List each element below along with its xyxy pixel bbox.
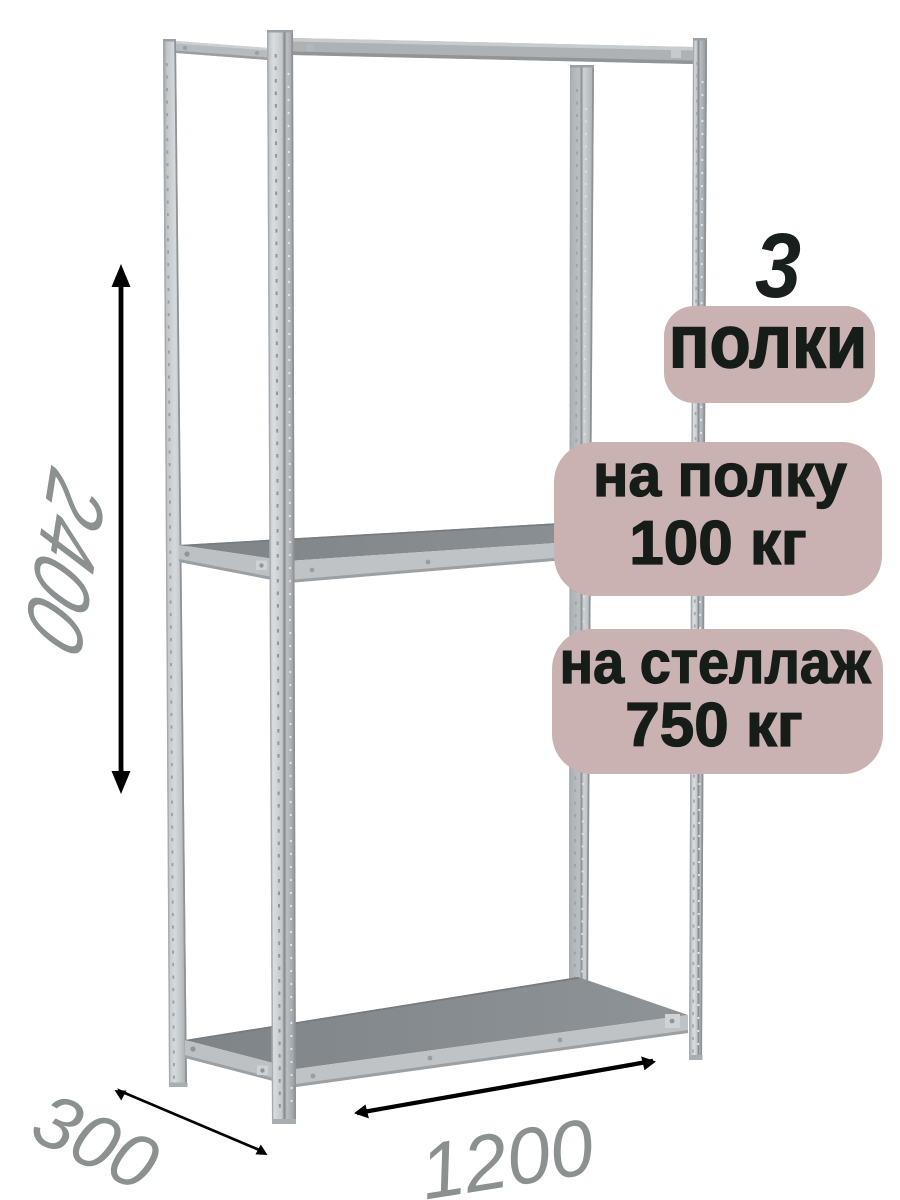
svg-text:750 кг: 750 кг [625,691,803,760]
svg-text:на стеллаж: на стеллаж [559,630,871,696]
svg-text:полки: полки [669,300,867,384]
svg-text:300: 300 [20,1076,171,1200]
svg-text:на полку: на полку [593,441,847,509]
svg-text:1200: 1200 [414,1102,600,1200]
svg-text:2400: 2400 [8,455,123,669]
svg-text:100 кг: 100 кг [629,509,807,578]
